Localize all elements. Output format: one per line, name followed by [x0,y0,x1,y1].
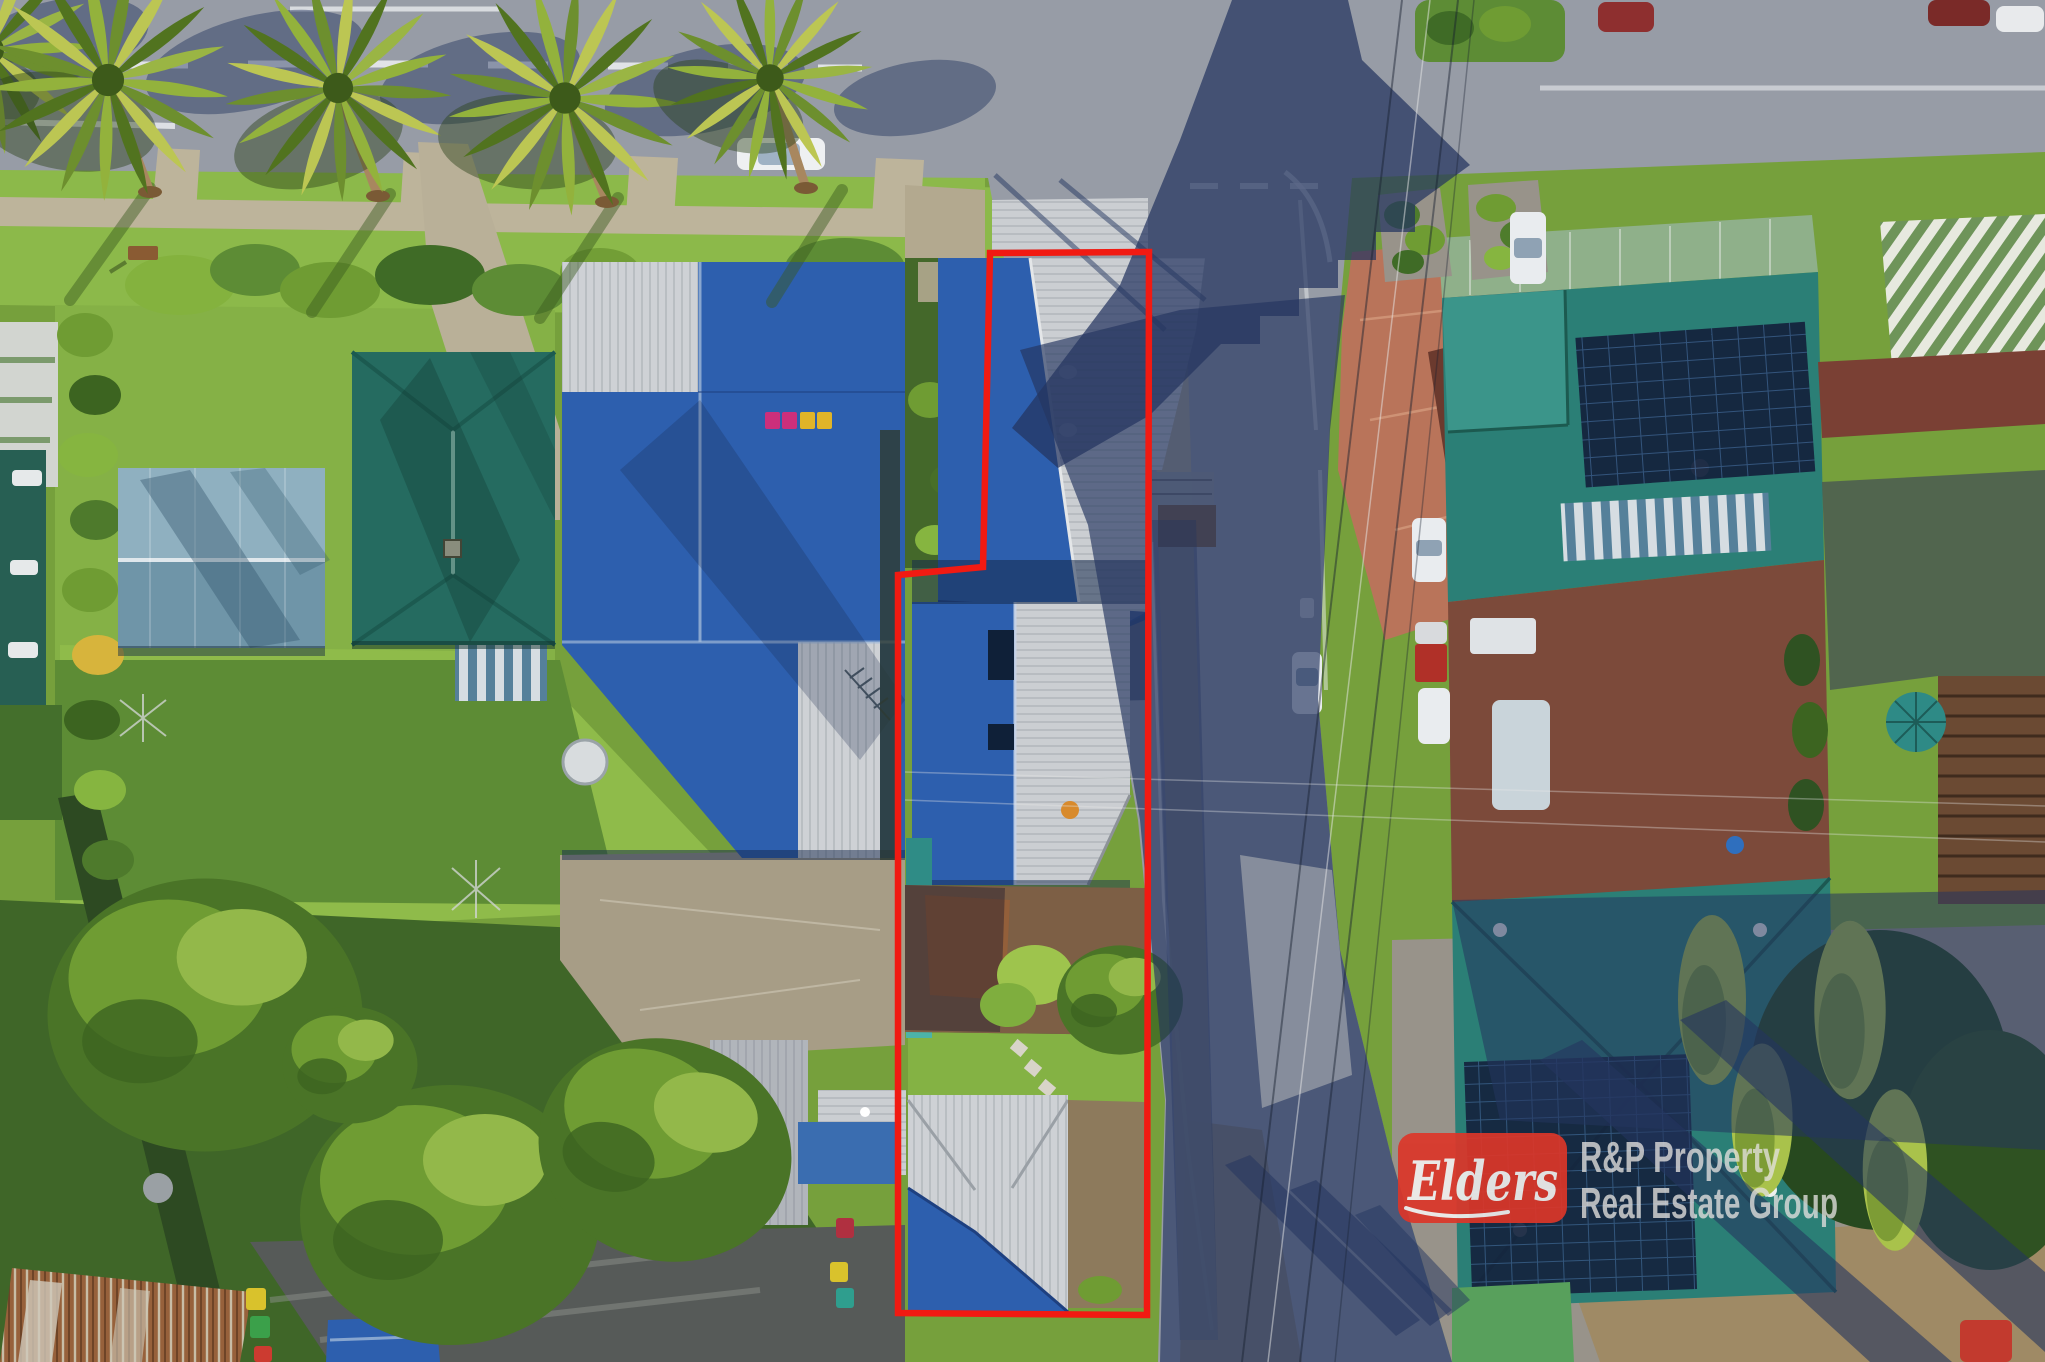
solar-panels-upper [1575,322,1815,488]
skylight [988,630,1014,680]
watermark: Elders R&P Property Real Estate Group [1398,1133,1838,1228]
blue-awning [798,1122,896,1184]
ute-white-kerb [1412,518,1446,582]
water-tank [563,740,607,784]
car-white-corner [1996,6,2044,32]
far-right-brick-band [1818,350,2045,438]
car-white-kerb2 [1418,688,1450,744]
aerial-photo: Elders R&P Property Real Estate Group [0,0,2045,1362]
park-bench [128,246,158,260]
bin-red [254,1346,272,1362]
car-darkred-corner [1928,0,1990,26]
house-steel-blue-gable [118,468,330,656]
rear-courtyard-right [1448,560,1830,902]
skylight [988,724,1014,750]
house-jade-hip [352,352,555,701]
truck-red-cargo [1415,622,1447,682]
concrete-pad-center [560,850,905,1060]
truck-red-bottom [1960,1320,2012,1362]
patio-umbrella [1886,692,1946,752]
watermark-agency-line2: Real Estate Group [1580,1179,1838,1228]
striped-awning-left [455,645,547,701]
far-right-striped-awning [1880,214,2045,366]
ute-white-top [1510,212,1546,284]
striped-awning-right [1561,493,1772,562]
pergola [1938,676,2045,904]
bin-yellow [246,1288,266,1310]
watermark-agency-line1: R&P Property [1580,1133,1780,1182]
car-red-top [1598,2,1654,32]
elders-logo-text: Elders [1406,1149,1558,1213]
bin-green [250,1316,270,1338]
satellite-dish [1061,801,1079,819]
subject-rear-shed [908,1095,1068,1312]
